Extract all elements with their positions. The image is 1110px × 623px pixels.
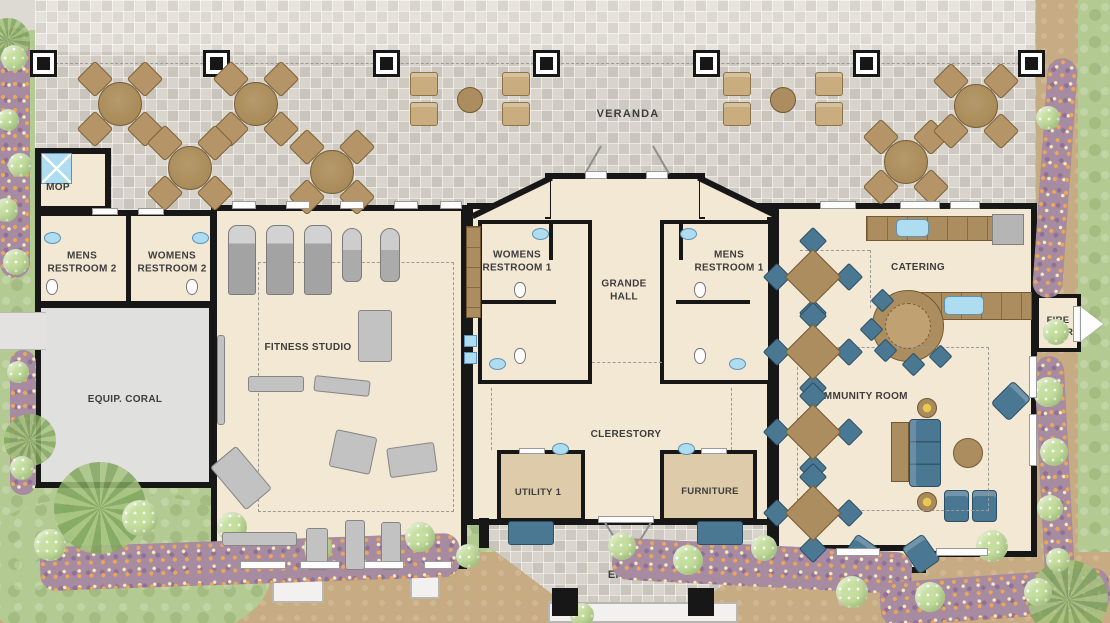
entry-column bbox=[552, 588, 578, 616]
label-mop: MOP bbox=[46, 182, 70, 195]
veranda-column bbox=[533, 50, 560, 77]
label-clerestory: CLERESTORY bbox=[591, 429, 662, 442]
lounge-chair bbox=[502, 72, 530, 96]
shrub bbox=[405, 522, 435, 552]
dining-table bbox=[168, 146, 212, 190]
window bbox=[836, 548, 880, 556]
shrub bbox=[915, 582, 945, 612]
window bbox=[286, 201, 310, 209]
table-set-table bbox=[785, 249, 842, 306]
sink bbox=[729, 358, 746, 370]
mens1-partition-h bbox=[676, 300, 750, 304]
veranda-column-core bbox=[540, 57, 553, 70]
lounge-table bbox=[770, 87, 796, 113]
toilet bbox=[694, 348, 706, 364]
dining-table bbox=[310, 150, 354, 194]
gym-machine bbox=[222, 532, 297, 546]
shrub bbox=[122, 500, 158, 536]
shrub bbox=[1024, 578, 1052, 606]
dining-set bbox=[938, 68, 1014, 144]
shrub bbox=[1, 45, 27, 71]
bar-curve-inner bbox=[885, 303, 931, 349]
fire-riser-door-swing bbox=[1081, 307, 1103, 341]
gym-machine bbox=[358, 310, 392, 362]
window bbox=[646, 171, 668, 179]
shrub bbox=[1040, 438, 1068, 466]
veranda-column-core bbox=[1025, 57, 1038, 70]
veranda-column bbox=[1018, 50, 1045, 77]
shrub bbox=[673, 545, 703, 575]
dining-set bbox=[868, 124, 944, 200]
table-set bbox=[767, 467, 859, 559]
sink bbox=[489, 358, 506, 370]
window bbox=[900, 201, 940, 209]
shrub bbox=[1033, 377, 1063, 407]
toilet bbox=[514, 282, 526, 298]
window bbox=[424, 561, 452, 569]
dining-set bbox=[294, 134, 370, 210]
lounge-chair bbox=[815, 102, 843, 126]
lounge-chair bbox=[410, 72, 438, 96]
window bbox=[1029, 356, 1037, 398]
sink bbox=[552, 443, 569, 455]
catering-counter bbox=[866, 216, 994, 241]
veranda-column bbox=[30, 50, 57, 77]
treadmill bbox=[228, 225, 256, 295]
clerestory-dash-left bbox=[491, 388, 492, 450]
label-fitness-studio: FITNESS STUDIO bbox=[265, 342, 352, 355]
lounge-chair bbox=[502, 102, 530, 126]
veranda-column-core bbox=[380, 57, 393, 70]
dining-set bbox=[82, 66, 158, 142]
window bbox=[950, 201, 980, 209]
table-set-table bbox=[785, 404, 842, 461]
shrub bbox=[34, 529, 66, 561]
dining-table bbox=[234, 82, 278, 126]
entry-bench bbox=[508, 521, 554, 545]
window bbox=[585, 171, 607, 179]
lounge-table bbox=[457, 87, 483, 113]
table-set-table bbox=[785, 485, 842, 542]
gym-machine bbox=[248, 376, 304, 392]
veranda-column-core bbox=[700, 57, 713, 70]
bar-sink bbox=[944, 296, 984, 315]
shrub bbox=[10, 456, 34, 480]
shrub bbox=[608, 532, 636, 560]
window bbox=[936, 548, 988, 556]
label-catering: CATERING bbox=[891, 262, 945, 275]
exercise-bike bbox=[342, 228, 362, 282]
sink bbox=[678, 443, 695, 455]
lounge-chair bbox=[410, 102, 438, 126]
sink bbox=[44, 232, 61, 244]
veranda-column bbox=[853, 50, 880, 77]
sink bbox=[192, 232, 209, 244]
veranda-roof-overhang bbox=[35, 0, 1035, 52]
toilet bbox=[694, 282, 706, 298]
window bbox=[820, 201, 856, 209]
womens1-partition-h bbox=[482, 300, 556, 304]
toilet bbox=[514, 348, 526, 364]
window bbox=[240, 561, 286, 569]
shrub bbox=[1037, 495, 1063, 521]
dining-table bbox=[884, 140, 928, 184]
lounge-chair bbox=[723, 102, 751, 126]
gym-machine bbox=[217, 335, 225, 425]
label-mens-restroom-2: MENS RESTROOM 2 bbox=[44, 251, 120, 276]
shrub bbox=[456, 544, 480, 568]
grande-hall-north-bay bbox=[545, 173, 705, 219]
catering-fridge bbox=[992, 214, 1024, 245]
lounge-chair bbox=[723, 72, 751, 96]
porch-wall-left-stub bbox=[479, 518, 489, 548]
entry-bench bbox=[697, 521, 743, 545]
grande-dash-h bbox=[592, 362, 662, 363]
catering-counter-sink bbox=[896, 219, 929, 237]
label-grande-hall: GRANDE HALL bbox=[596, 279, 652, 304]
shrub bbox=[1043, 319, 1069, 345]
drinking-fountain bbox=[464, 335, 477, 347]
table-set-table bbox=[785, 324, 842, 381]
window bbox=[232, 201, 256, 209]
toilet bbox=[186, 279, 198, 295]
clerestory-dash-right bbox=[731, 388, 732, 450]
window bbox=[1029, 414, 1037, 466]
veranda-column bbox=[373, 50, 400, 77]
label-utility-1: UTILITY 1 bbox=[515, 487, 561, 499]
window bbox=[300, 561, 340, 569]
floor-plan: VERANDA MOP MENS RESTROOM 2 WOMENS RESTR… bbox=[0, 0, 1110, 623]
window bbox=[138, 208, 164, 215]
shrub bbox=[836, 576, 868, 608]
lounge-set bbox=[410, 72, 530, 128]
restroom2-divider-wall bbox=[126, 214, 131, 303]
treadmill bbox=[266, 225, 294, 295]
gym-machine bbox=[345, 520, 365, 570]
shrub bbox=[7, 361, 29, 383]
shrub bbox=[1046, 548, 1070, 572]
shrub bbox=[3, 249, 29, 275]
shrub bbox=[8, 153, 32, 177]
dining-table bbox=[98, 82, 142, 126]
window bbox=[340, 201, 364, 209]
room-utility-1 bbox=[497, 450, 585, 522]
toilet bbox=[46, 279, 58, 295]
label-mens-restroom-1: MENS RESTROOM 1 bbox=[691, 250, 767, 275]
sink bbox=[532, 228, 549, 240]
exercise-bike bbox=[380, 228, 400, 282]
dining-table bbox=[954, 84, 998, 128]
dining-set bbox=[152, 130, 228, 206]
label-womens-restroom-1: WOMENS RESTROOM 1 bbox=[479, 250, 555, 275]
label-veranda: VERANDA bbox=[597, 108, 660, 122]
entry-column bbox=[688, 588, 714, 616]
label-womens-restroom-2: WOMENS RESTROOM 2 bbox=[134, 251, 210, 276]
label-equip-coral: EQUIP. CORAL bbox=[88, 394, 163, 407]
equipment-driveway bbox=[0, 312, 46, 350]
veranda-column-core bbox=[860, 57, 873, 70]
treadmill bbox=[304, 225, 332, 295]
sink bbox=[680, 228, 697, 240]
mop-sink-basin bbox=[41, 153, 72, 184]
window bbox=[394, 201, 418, 209]
lounge-set bbox=[723, 72, 843, 128]
window bbox=[440, 201, 462, 209]
lounge-chair bbox=[815, 72, 843, 96]
window bbox=[364, 561, 404, 569]
shrub bbox=[1036, 106, 1060, 130]
drinking-fountain bbox=[464, 352, 477, 364]
window bbox=[701, 448, 727, 454]
veranda-column bbox=[693, 50, 720, 77]
dining-set bbox=[218, 66, 294, 142]
veranda-column-core bbox=[37, 57, 50, 70]
shrub bbox=[976, 530, 1008, 562]
label-furniture: FURNITURE bbox=[681, 486, 739, 498]
window bbox=[92, 208, 118, 215]
window bbox=[598, 516, 654, 523]
window bbox=[519, 448, 545, 454]
